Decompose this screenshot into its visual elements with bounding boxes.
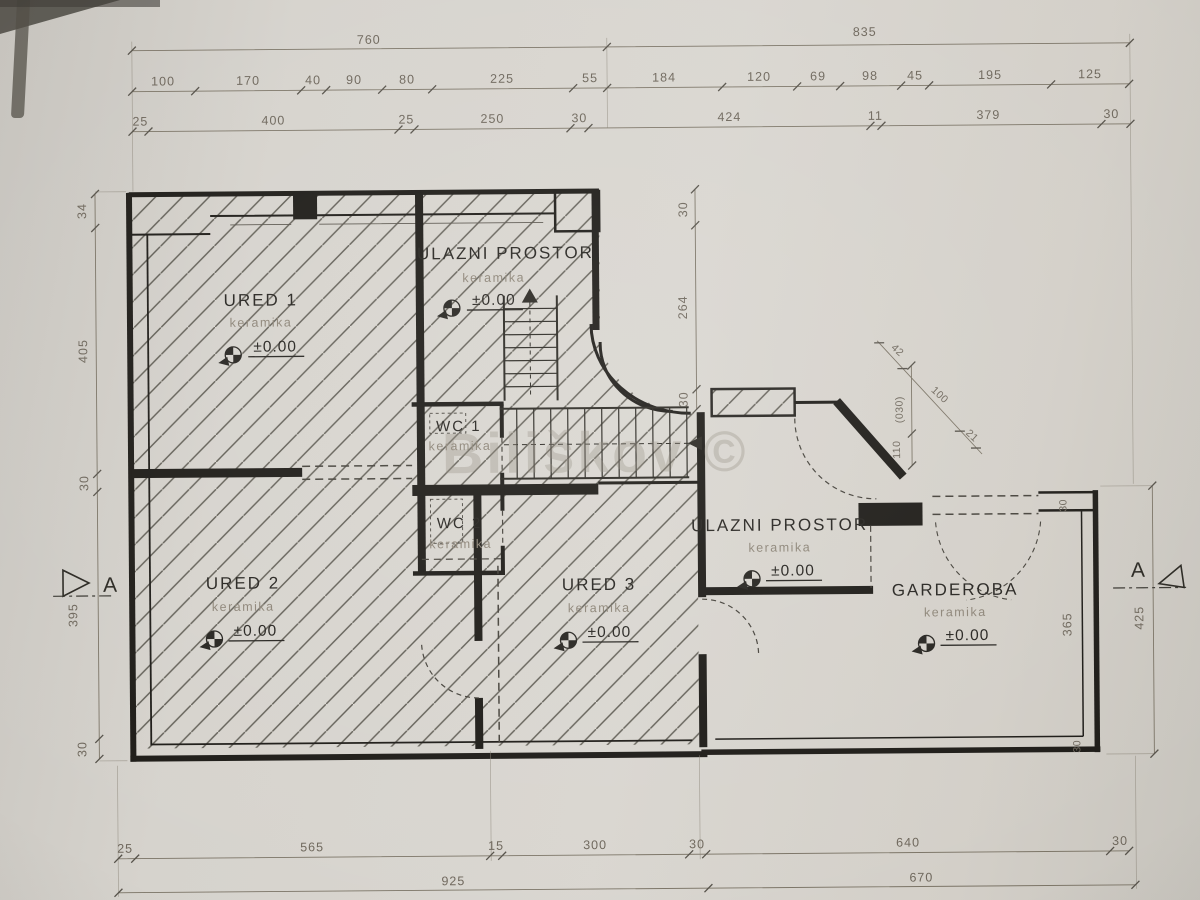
dim-label: 670: [909, 870, 933, 884]
room-name: GARDEROBA: [892, 580, 1019, 600]
room-level: ±0.00: [472, 292, 516, 309]
photo-top-edge: [0, 0, 160, 7]
room-material: keramika: [924, 605, 987, 619]
dim-label: 195: [978, 68, 1002, 82]
dim-label: 395: [66, 603, 80, 627]
dim-label: 25: [398, 112, 414, 126]
room-material: keramika: [429, 537, 492, 551]
section-triangle-left: [63, 570, 89, 596]
room-name: ULAZNI PROSTOR: [691, 515, 868, 535]
room-material: keramika: [748, 540, 811, 554]
dim-label: 425: [1132, 606, 1146, 630]
dim-label: 365: [1060, 612, 1074, 636]
dim-label: 11: [868, 109, 883, 123]
dim-label: 225: [490, 72, 514, 86]
dim-label: 835: [853, 25, 877, 39]
section-triangle-right: [1159, 565, 1184, 587]
dim-label: 30: [1112, 834, 1128, 848]
dim-label: 98: [862, 69, 878, 83]
dim-label: 30: [1071, 740, 1083, 753]
dim-label: 69: [810, 69, 826, 83]
dim-label: 25: [117, 842, 133, 856]
room-material: keramika: [212, 600, 275, 614]
room-ulazni-prostor-right: ULAZNI PROSTOR keramika ±0.00: [691, 515, 869, 590]
dim-label: 30: [1103, 107, 1119, 121]
dim-label: 30: [571, 111, 587, 125]
dim-label: 120: [747, 70, 771, 84]
room-name: URED 2: [206, 574, 281, 594]
dim-label: 40: [305, 73, 321, 87]
dim-label: 264: [676, 295, 690, 319]
photographed-floor-plan: A A 760 835 100 170 40 90 80 225 55 184 …: [0, 0, 1200, 900]
dim-label: 110: [891, 440, 903, 458]
dim-label: 250: [480, 112, 504, 126]
room-name: ULAZNI PROSTOR: [417, 243, 594, 263]
room-ured2: URED 2 keramika ±0.00: [199, 573, 285, 650]
dim-label: 184: [652, 70, 676, 84]
dim-label: 640: [896, 835, 920, 849]
room-level: ±0.00: [946, 627, 990, 644]
dim-label: 30: [677, 391, 691, 407]
dim-label: 34: [75, 203, 89, 219]
room-level: ±0.00: [588, 624, 632, 641]
dim-label: 30: [689, 837, 705, 851]
dim-label: 90: [346, 73, 362, 87]
dim-label: 55: [582, 71, 598, 85]
dim-label: 760: [357, 33, 381, 47]
dim-label: 21: [963, 427, 980, 444]
section-label-left: A: [103, 574, 118, 597]
dim-label: 45: [907, 68, 923, 82]
dim-label: 925: [441, 874, 465, 888]
dim-label: (030): [894, 396, 906, 423]
dim-label: 80: [399, 72, 415, 86]
door-arc-ured3: [702, 599, 758, 655]
dim-label: 25: [132, 115, 148, 129]
dim-label: 300: [583, 838, 607, 852]
dim-label: 379: [976, 108, 1000, 122]
dim-label: 405: [76, 339, 90, 363]
dim-label: 30: [1057, 499, 1069, 512]
room-material: keramika: [568, 601, 631, 615]
room-material: keramika: [462, 271, 525, 285]
room-name: WC 2: [437, 515, 483, 532]
section-label-right: A: [1131, 559, 1146, 582]
dim-label: 125: [1078, 67, 1102, 81]
room-level: ±0.00: [771, 562, 815, 579]
dim-label: 565: [300, 840, 324, 854]
room-ured1: URED 1 keramika ±0.00: [218, 290, 305, 366]
dim-label: 100: [929, 384, 951, 406]
dim-label: 30: [676, 201, 690, 217]
room-garderoba: GARDEROBA keramika ±0.00: [892, 580, 1019, 655]
dim-label: 424: [717, 110, 741, 124]
room-name: URED 1: [224, 290, 299, 310]
dim-label: 100: [151, 74, 175, 88]
room-level: ±0.00: [253, 338, 297, 355]
room-level: ±0.00: [234, 623, 278, 640]
room-name: URED 3: [562, 575, 637, 595]
dim-label: 400: [261, 113, 285, 127]
watermark-text: Biliškov ©: [442, 420, 749, 486]
dim-label: 30: [77, 475, 91, 491]
room-material: keramika: [230, 315, 293, 329]
plan-tilt-wrapper: A A 760 835 100 170 40 90 80 225 55 184 …: [0, 0, 1200, 900]
floor-plan-drawing: A A 760 835 100 170 40 90 80 225 55 184 …: [0, 0, 1200, 900]
dim-label: 170: [236, 74, 260, 88]
dim-label: 15: [488, 839, 504, 853]
dim-label: 30: [75, 741, 89, 757]
